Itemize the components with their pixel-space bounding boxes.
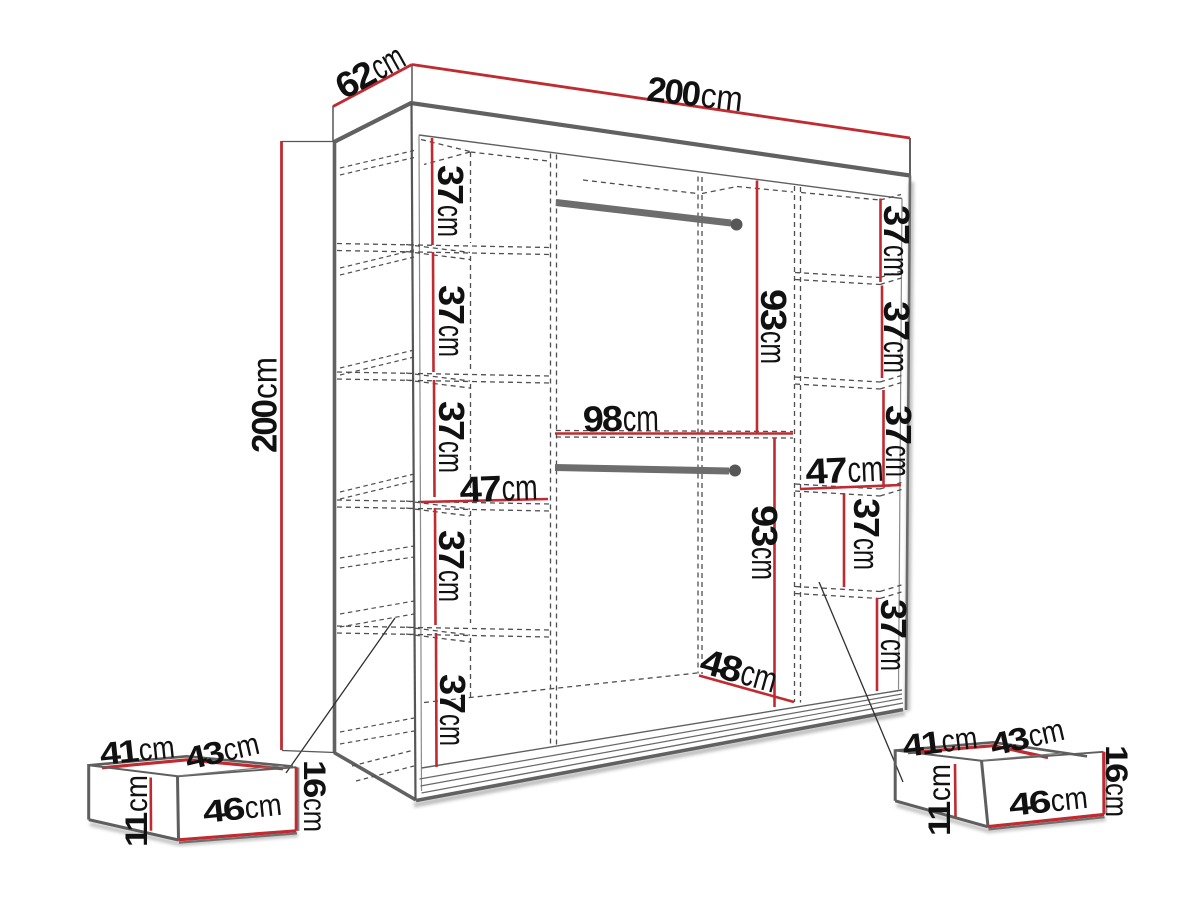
- svg-text:cm: cm: [431, 325, 472, 357]
- svg-text:37: 37: [431, 401, 472, 440]
- svg-text:37: 37: [432, 674, 473, 713]
- svg-text:cm: cm: [846, 538, 887, 570]
- svg-text:cm: cm: [137, 728, 177, 768]
- svg-text:cm: cm: [432, 714, 473, 746]
- svg-text:37: 37: [876, 301, 917, 340]
- svg-text:37: 37: [846, 498, 887, 537]
- svg-text:cm: cm: [297, 798, 333, 832]
- svg-text:16: 16: [297, 760, 333, 798]
- svg-text:cm: cm: [878, 445, 919, 477]
- svg-text:47: 47: [459, 468, 501, 510]
- svg-text:37: 37: [431, 530, 472, 569]
- svg-text:46: 46: [1007, 783, 1052, 823]
- svg-text:46: 46: [201, 790, 246, 830]
- svg-text:37: 37: [431, 285, 472, 324]
- svg-text:cm: cm: [1099, 783, 1135, 817]
- svg-text:37: 37: [430, 165, 471, 204]
- svg-text:37: 37: [873, 599, 914, 638]
- svg-text:93: 93: [744, 505, 785, 546]
- svg-text:cm: cm: [431, 570, 472, 602]
- svg-text:37: 37: [876, 205, 917, 244]
- svg-text:cm: cm: [501, 466, 538, 508]
- svg-text:cm: cm: [430, 205, 471, 237]
- svg-text:cm: cm: [622, 397, 659, 439]
- svg-text:cm: cm: [939, 719, 979, 759]
- svg-text:cm: cm: [847, 448, 885, 491]
- svg-text:11: 11: [118, 812, 154, 847]
- svg-text:cm: cm: [876, 341, 917, 373]
- svg-text:cm: cm: [699, 76, 745, 120]
- svg-text:cm: cm: [876, 245, 917, 277]
- svg-text:37: 37: [878, 405, 919, 444]
- svg-text:11: 11: [921, 801, 957, 836]
- svg-text:16: 16: [1099, 745, 1135, 783]
- svg-text:cm: cm: [753, 331, 794, 364]
- svg-text:93: 93: [753, 289, 794, 330]
- svg-text:200: 200: [246, 399, 285, 453]
- svg-text:cm: cm: [243, 786, 284, 826]
- svg-text:cm: cm: [118, 775, 154, 812]
- svg-text:cm: cm: [873, 639, 914, 671]
- svg-text:cm: cm: [1049, 779, 1090, 819]
- svg-text:cm: cm: [246, 357, 285, 399]
- svg-text:200: 200: [645, 70, 703, 115]
- svg-text:cm: cm: [744, 547, 785, 580]
- svg-text:98: 98: [582, 398, 622, 440]
- svg-text:47: 47: [805, 449, 848, 492]
- svg-text:41: 41: [98, 732, 140, 772]
- svg-text:41: 41: [900, 723, 943, 763]
- svg-text:cm: cm: [921, 764, 957, 801]
